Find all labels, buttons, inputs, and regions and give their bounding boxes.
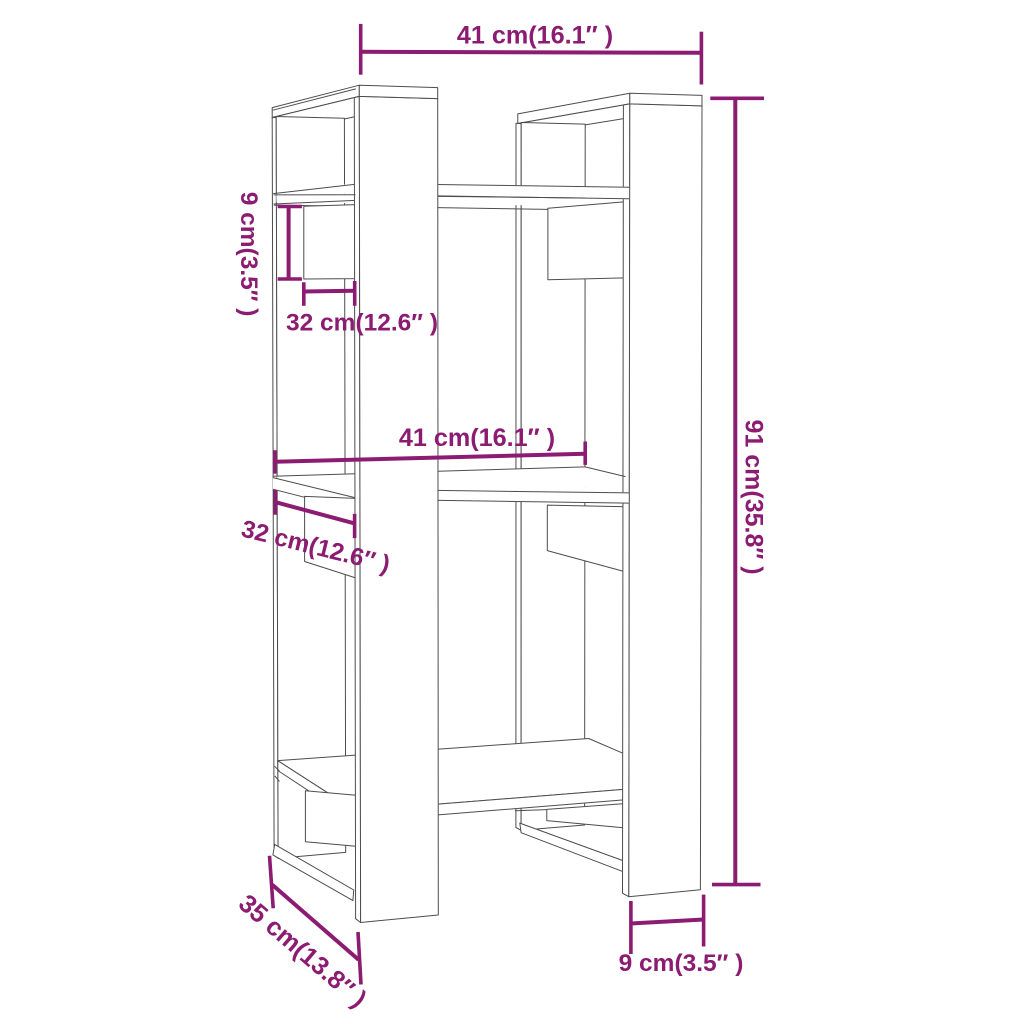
svg-text:9 cm(3.5″ ): 9 cm(3.5″ ) bbox=[619, 950, 744, 977]
svg-text:9 cm(3.5″ ): 9 cm(3.5″ ) bbox=[235, 192, 262, 317]
svg-text:41 cm(16.1″ ): 41 cm(16.1″ ) bbox=[457, 21, 613, 49]
svg-text:41 cm(16.1″ ): 41 cm(16.1″ ) bbox=[399, 424, 555, 452]
svg-text:91 cm(35.8″ ): 91 cm(35.8″ ) bbox=[740, 420, 768, 575]
svg-text:32 cm(12.6″ ): 32 cm(12.6″ ) bbox=[286, 310, 438, 337]
